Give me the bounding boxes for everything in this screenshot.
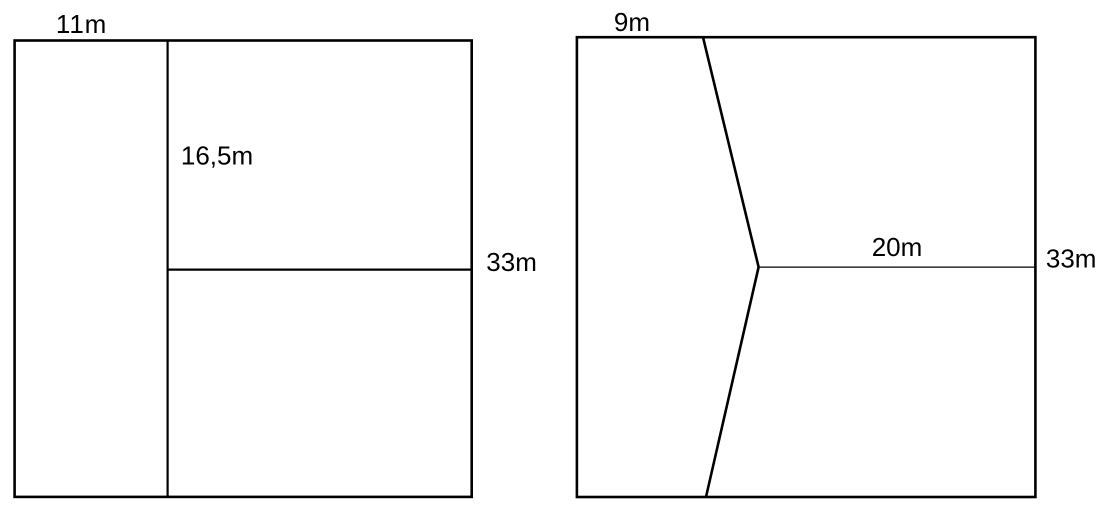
svg-text:16,5m: 16,5m <box>181 140 253 170</box>
svg-text:9m: 9m <box>614 7 650 37</box>
svg-text:33m: 33m <box>1046 243 1097 273</box>
svg-text:20m: 20m <box>872 232 923 262</box>
svg-text:33m: 33m <box>486 247 537 277</box>
svg-text:11m: 11m <box>56 9 107 39</box>
